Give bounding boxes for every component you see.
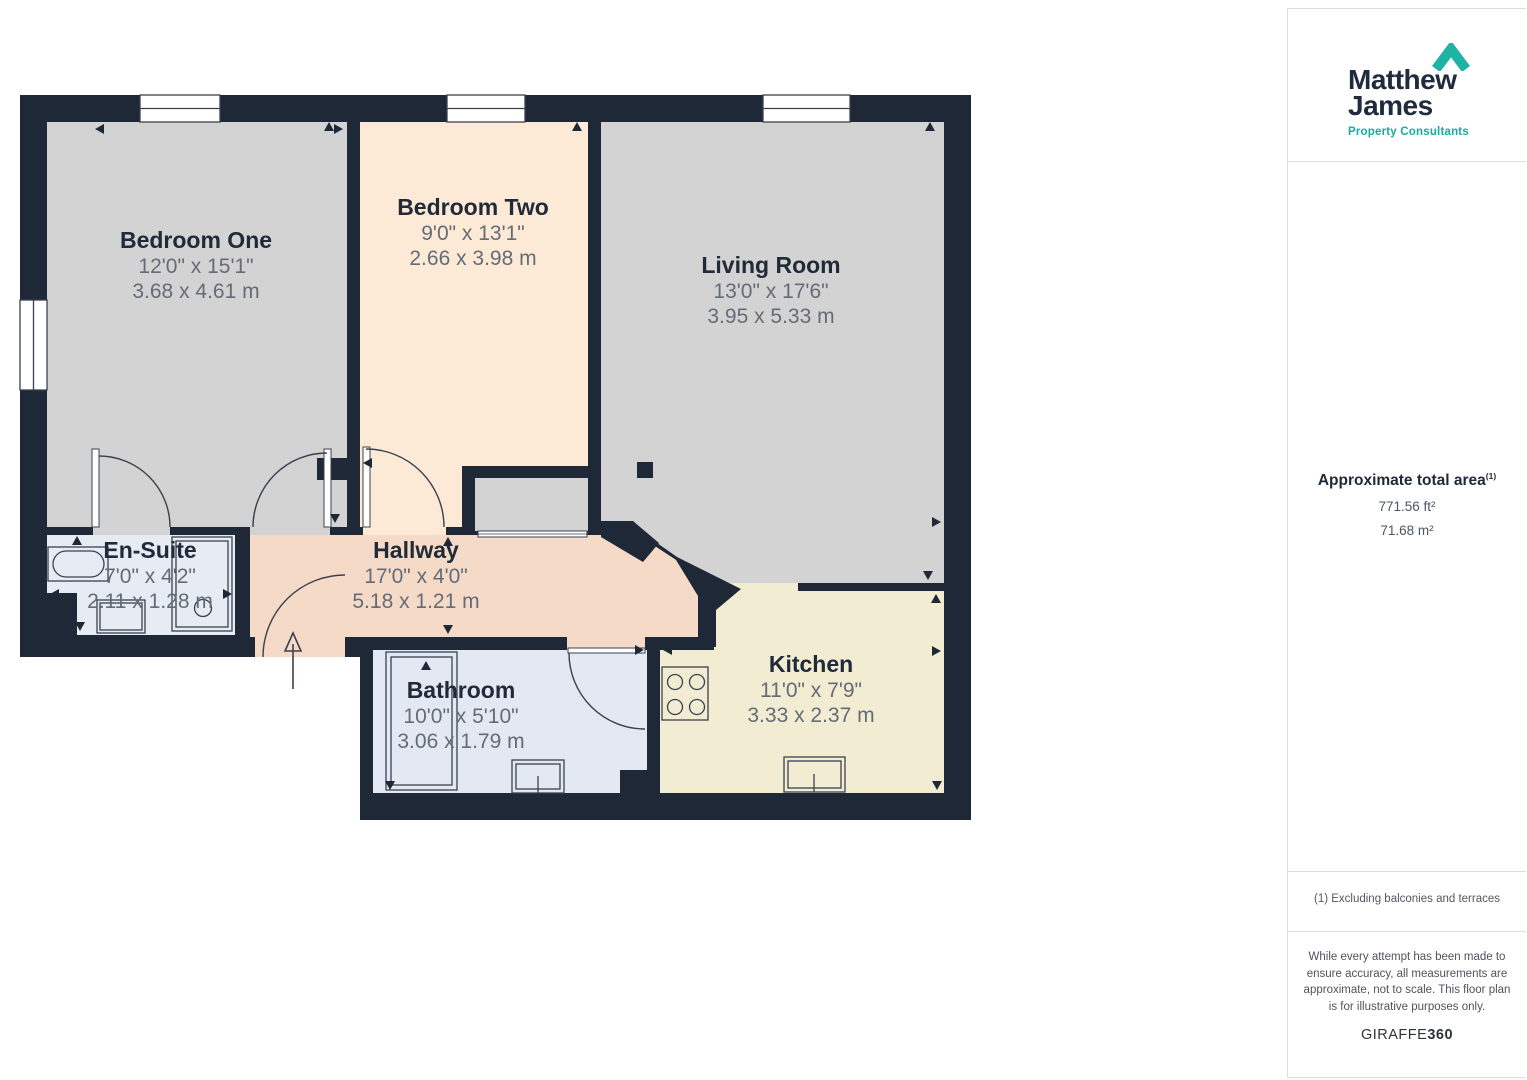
sidebar-divider — [1288, 871, 1526, 872]
sidebar: Matthew James Property Consultants Appro… — [1287, 8, 1526, 1078]
door-leaf-ensuite — [92, 449, 99, 527]
area-footnote: (1) Excluding balconies and terraces — [1288, 893, 1526, 905]
roof-chevron-icon — [1432, 43, 1470, 71]
sidebar-divider — [1288, 161, 1526, 162]
door-leaf-bedroom-two — [363, 447, 370, 527]
logo-subtitle: Property Consultants — [1348, 126, 1478, 138]
floorplan-drawing — [0, 0, 1287, 1080]
logo-line2: James — [1348, 93, 1478, 119]
disclaimer-text: While every attempt has been made to ens… — [1302, 949, 1512, 1015]
floorplan-canvas: Bedroom One 12'0" x 15'1" 3.68 x 4.61 m … — [0, 0, 1287, 1080]
room-living-room-floor — [601, 122, 944, 583]
total-area-ft: 771.56 ft² — [1288, 499, 1526, 514]
pillar — [637, 462, 653, 478]
room-bathroom-floor — [373, 650, 647, 793]
wall-stub-bedroom-one — [317, 458, 347, 480]
wall-step-bathroom — [620, 770, 647, 793]
door-leaf-bathroom — [568, 648, 645, 653]
total-area-block: Approximate total area(1) 771.56 ft² 71.… — [1288, 471, 1526, 538]
room-floors — [47, 122, 944, 793]
sidebar-divider — [1288, 931, 1526, 932]
giraffe360-brand: GIRAFFE360 — [1288, 1027, 1526, 1043]
footnote-marker: (1) — [1486, 471, 1496, 481]
closet-floor — [475, 478, 588, 531]
floorplan-page: Bedroom One 12'0" x 15'1" 3.68 x 4.61 m … — [0, 0, 1527, 1080]
company-logo: Matthew James Property Consultants — [1348, 67, 1478, 138]
total-area-m: 71.68 m² — [1288, 523, 1526, 538]
door-leaf-bedroom-one — [324, 449, 331, 527]
total-area-title: Approximate total area(1) — [1288, 471, 1526, 490]
